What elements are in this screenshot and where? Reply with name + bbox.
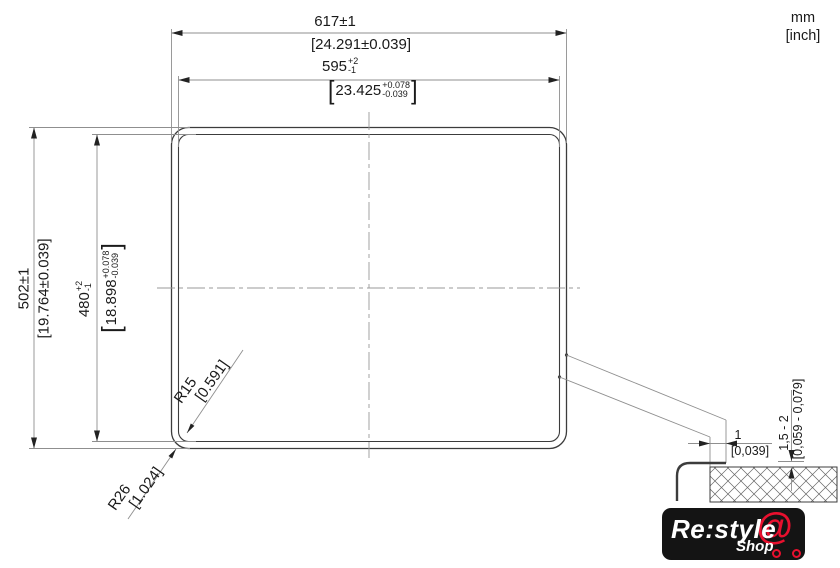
dim-outer-height-inch: [19.764±0.039] — [36, 229, 53, 349]
dim-outer-width-inch: [24.291±0.039] — [296, 36, 426, 53]
bracket-close: ] — [99, 243, 122, 249]
unit-metric: mm — [772, 9, 834, 27]
unit-imperial: [inch] — [772, 27, 834, 45]
cutout-width-tolerance: +2 -1 — [348, 57, 358, 76]
dim-cutout-width-inch: [ 23.425 +0.078 -0.039 ] — [327, 80, 418, 101]
technical-drawing-page: { "header": { "unit_metric": "mm", "unit… — [0, 0, 840, 568]
bracket-open: [ — [99, 326, 122, 332]
detail-rim-height-inch: [0,059 - 0,079] — [791, 373, 805, 465]
cart-wheel-icon — [792, 549, 801, 558]
cutout-width-inch-value: 23.425 — [335, 82, 381, 99]
dim-outer-width-mm: 617±1 — [275, 13, 395, 30]
centerlines — [157, 112, 580, 458]
cutout-height-tolerance: +2 -1 — [75, 281, 94, 291]
countertop-hatch — [710, 467, 837, 502]
cutout-height-value: 480 — [76, 292, 93, 317]
cutout-height-inch-tolerance: +0.078 -0.039 — [102, 251, 121, 279]
cutout-width-value: 595 — [322, 58, 347, 75]
detail-leaders — [558, 353, 726, 466]
dim-cutout-height-mm: 480 +2 -1 — [75, 276, 93, 322]
cutout-width-inch-tolerance: +0.078 -0.039 — [382, 81, 410, 100]
cart-wheel-icon — [772, 549, 781, 558]
dim-cutout-width-mm: 595 +2 -1 — [322, 57, 358, 76]
cutout-height-inch-value: 18.898 — [103, 279, 120, 325]
logo-sub-text: Shop — [736, 538, 774, 555]
bracket-close: ] — [411, 79, 417, 102]
detail-reveal-mm: 1 — [726, 428, 750, 442]
dim-outer-height-mm: 502±1 — [16, 254, 33, 324]
detail-reveal-inch: [0,039] — [722, 444, 778, 458]
dim-cutout-height-inch: [ 18.898 +0.078 -0.039 ] — [101, 238, 121, 338]
section-detail — [677, 463, 837, 502]
units-note: mm [inch] — [772, 9, 834, 45]
bracket-open: [ — [328, 79, 334, 102]
restyle-shop-logo: @ Re:style Shop — [662, 508, 805, 560]
detail-rim-height-mm: 1,5 - 2 — [777, 405, 791, 461]
